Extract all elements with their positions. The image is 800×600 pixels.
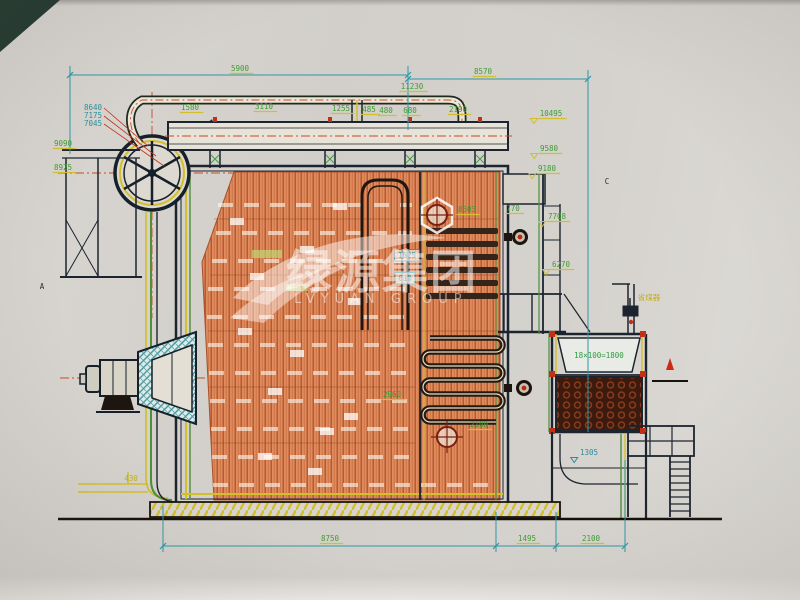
- dim-label-2190: 2190: [449, 105, 468, 114]
- dim-label-610: 610: [398, 274, 412, 283]
- elevation-marker: [652, 358, 688, 381]
- dim-label-1495: 1495: [518, 534, 536, 543]
- dim-label-2100: 2100: [470, 420, 489, 429]
- dim-label-430: 430: [124, 474, 138, 483]
- dim-label-485: 485: [362, 105, 376, 114]
- dim-label-480: 480: [379, 106, 393, 115]
- datum-flag: [571, 458, 578, 463]
- dim-label-8570: 8570: [474, 67, 493, 76]
- feed-pipe-valve: [612, 284, 638, 334]
- dim-label-8603: 8603: [458, 205, 476, 214]
- side-platform: [498, 294, 590, 332]
- datum-flag: [531, 154, 538, 159]
- burner: [80, 332, 196, 424]
- dim-label-7708: 7708: [548, 212, 567, 221]
- dim-label-1625: 1625: [398, 251, 416, 260]
- dim-label-2100: 2100: [582, 534, 601, 543]
- dim-label-1580: 1580: [181, 103, 200, 112]
- dim-label-18×100=1800: 18×100=1800: [574, 351, 624, 360]
- dim-label-A: A: [40, 282, 45, 291]
- dim-label-1305: 1305: [580, 448, 598, 457]
- boiler-drawing: 5900857011230158031101255485480680219010…: [0, 0, 800, 600]
- datum-flag: [530, 119, 537, 124]
- stairs-ladder: [628, 426, 694, 517]
- dim-label-10495: 10495: [540, 109, 563, 118]
- dim-label-1255: 1255: [332, 104, 350, 113]
- dim-label-8925: 8925: [54, 163, 72, 172]
- dim-label-770: 770: [506, 204, 520, 213]
- dim-label-C: C: [605, 177, 610, 186]
- dim-label-2960: 2960: [383, 390, 402, 399]
- top-header: [165, 117, 512, 168]
- photographed-drawing: 5900857011230158031101255485480680219010…: [0, 0, 800, 600]
- dim-label-9580: 9580: [540, 144, 559, 153]
- dim-label-9180: 9180: [538, 164, 557, 173]
- dim-label-7045: 7045: [84, 119, 102, 128]
- dim-label-11230: 11230: [401, 82, 424, 91]
- dim-label-省煤器: 省煤器: [638, 292, 661, 302]
- superheater-coil: [423, 338, 503, 422]
- dim-label-8750: 8750: [321, 534, 340, 543]
- dim-label-680: 680: [403, 106, 417, 115]
- dim-label-6270: 6270: [552, 260, 571, 269]
- dim-label-9090: 9090: [54, 139, 73, 148]
- dim-label-5900: 5900: [231, 64, 250, 73]
- dim-label-3110: 3110: [255, 102, 274, 111]
